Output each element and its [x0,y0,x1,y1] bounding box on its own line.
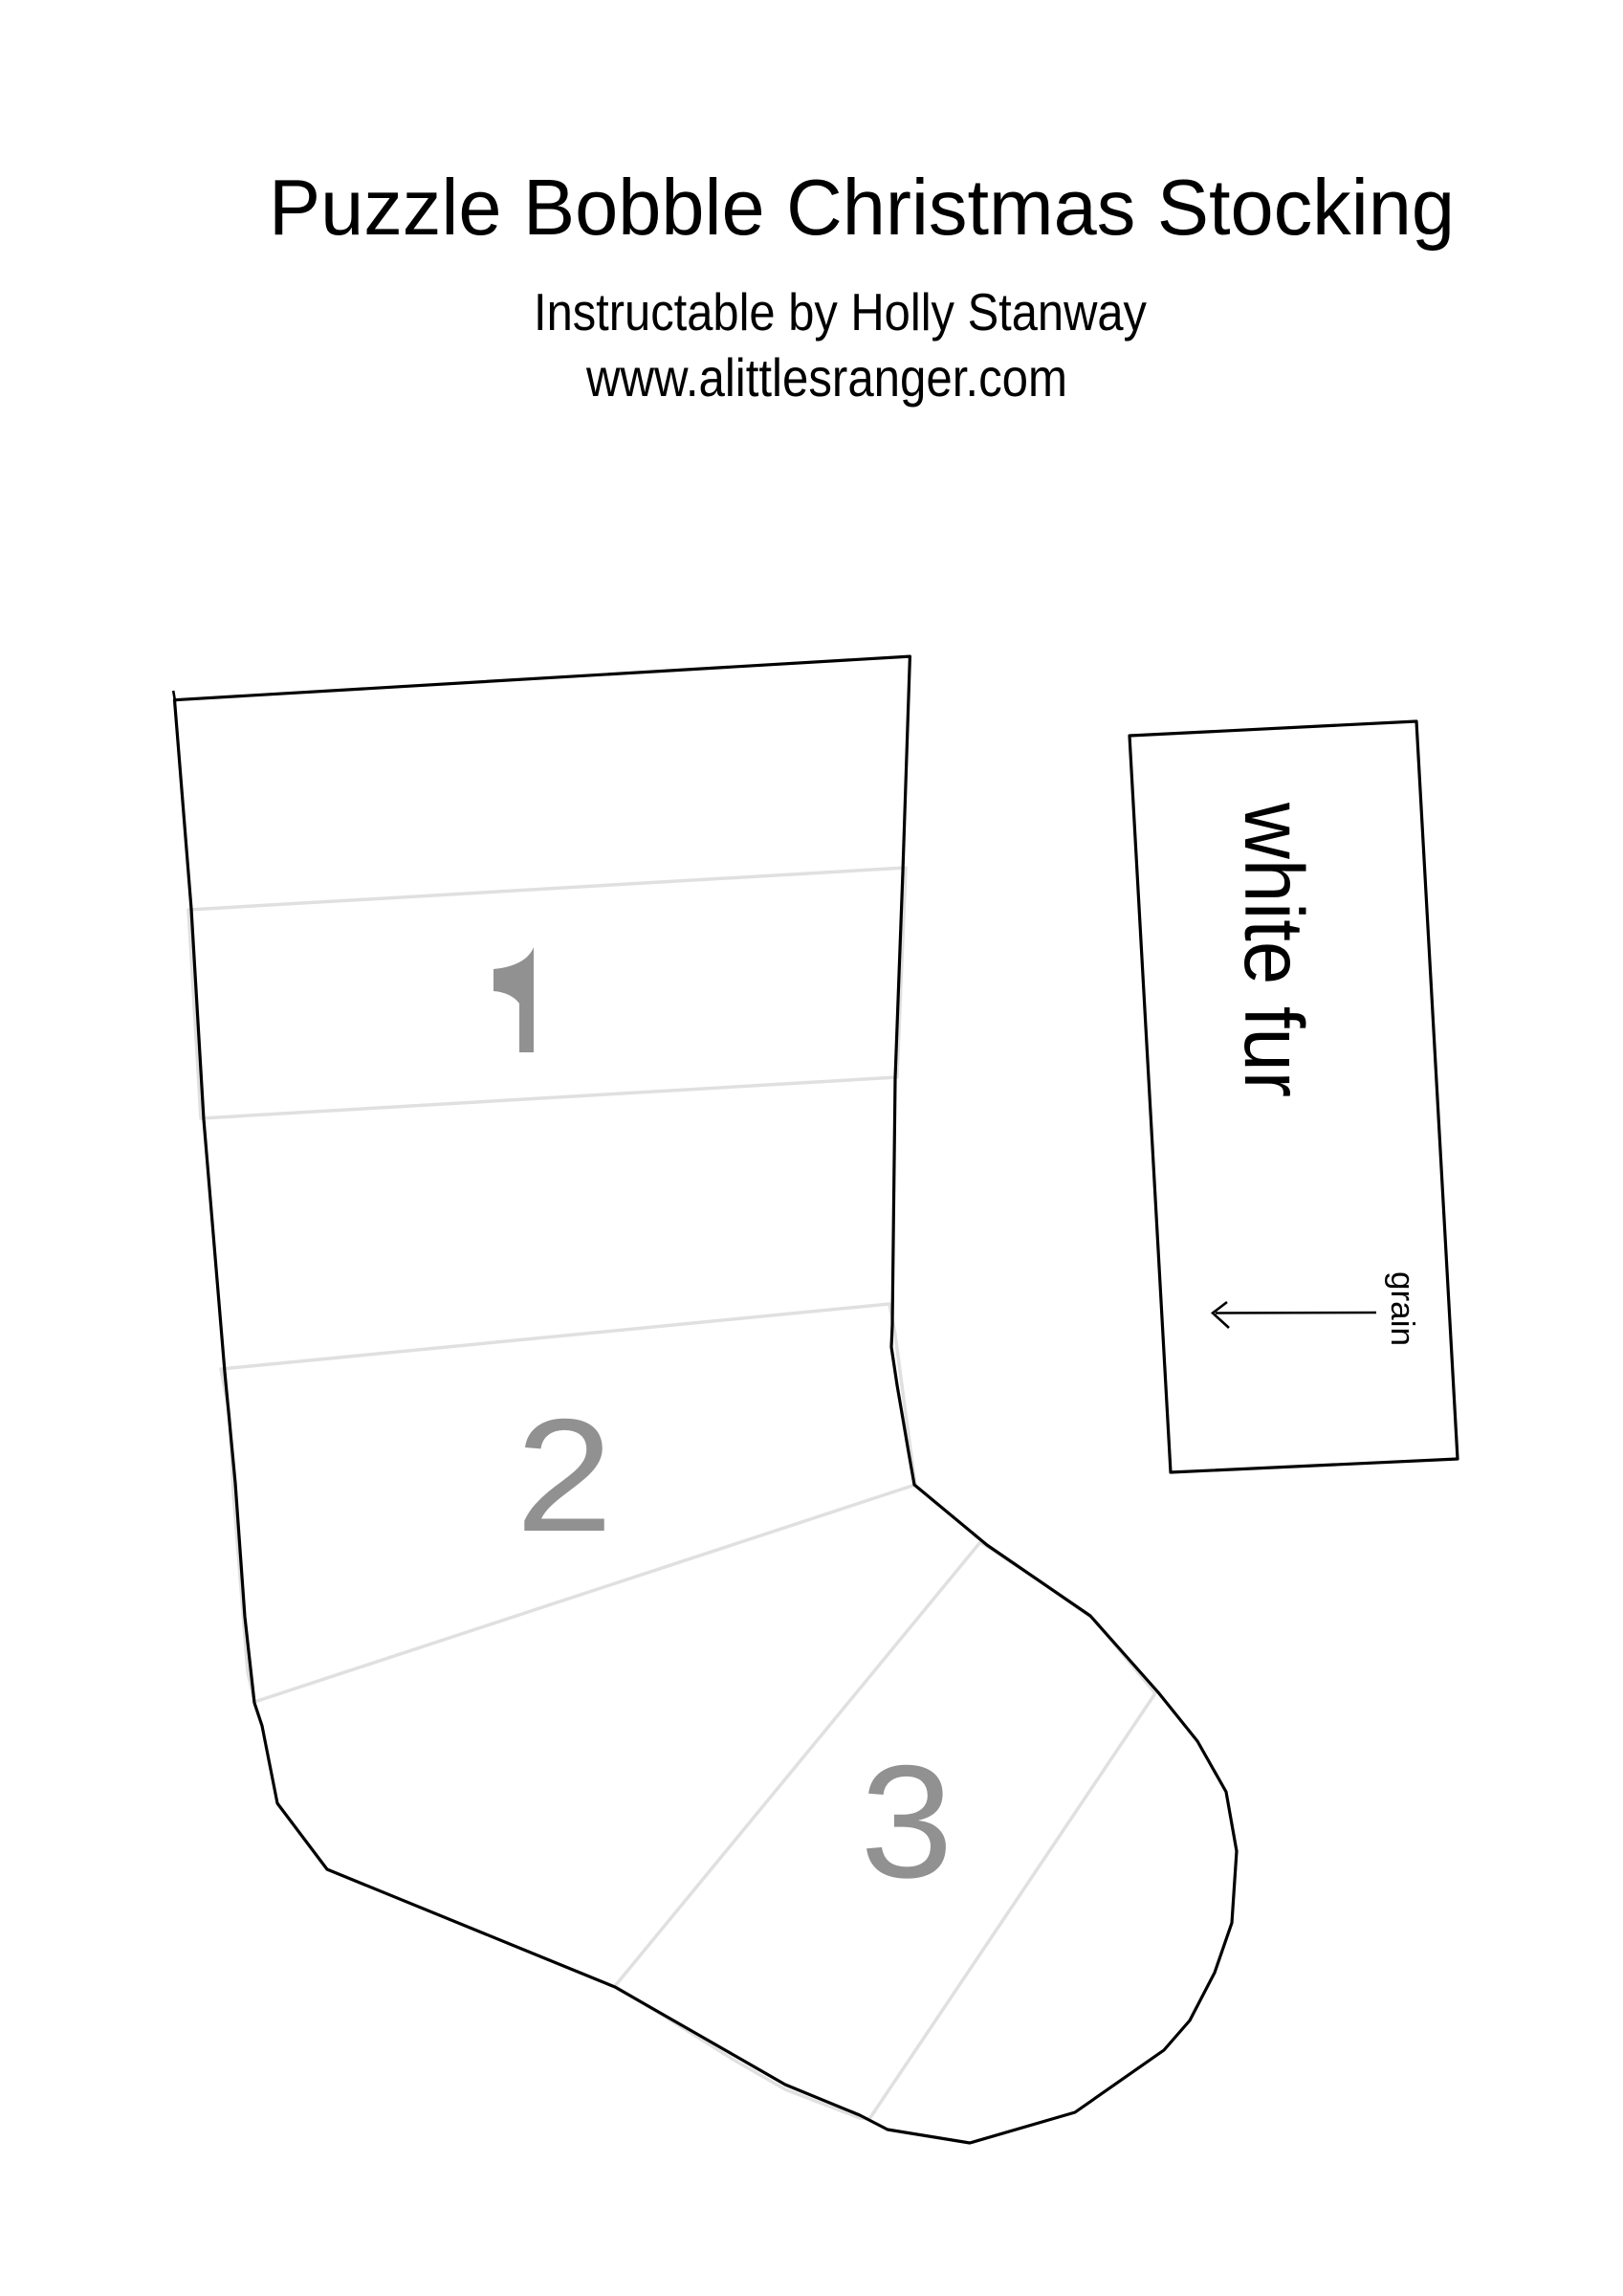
svg-text:white fur: white fur [1227,802,1320,1097]
svg-text:grain: grain [1384,1271,1420,1346]
svg-text:Instructable by Holly Stanway: Instructable by Holly Stanway [534,282,1147,342]
svg-text:3: 3 [860,1733,953,1911]
svg-text:2: 2 [515,1386,613,1565]
svg-text:www.alittlesranger.com: www.alittlesranger.com [585,347,1067,408]
svg-text:Puzzle Bobble Christmas Stocki: Puzzle Bobble Christmas Stocking [269,163,1455,252]
